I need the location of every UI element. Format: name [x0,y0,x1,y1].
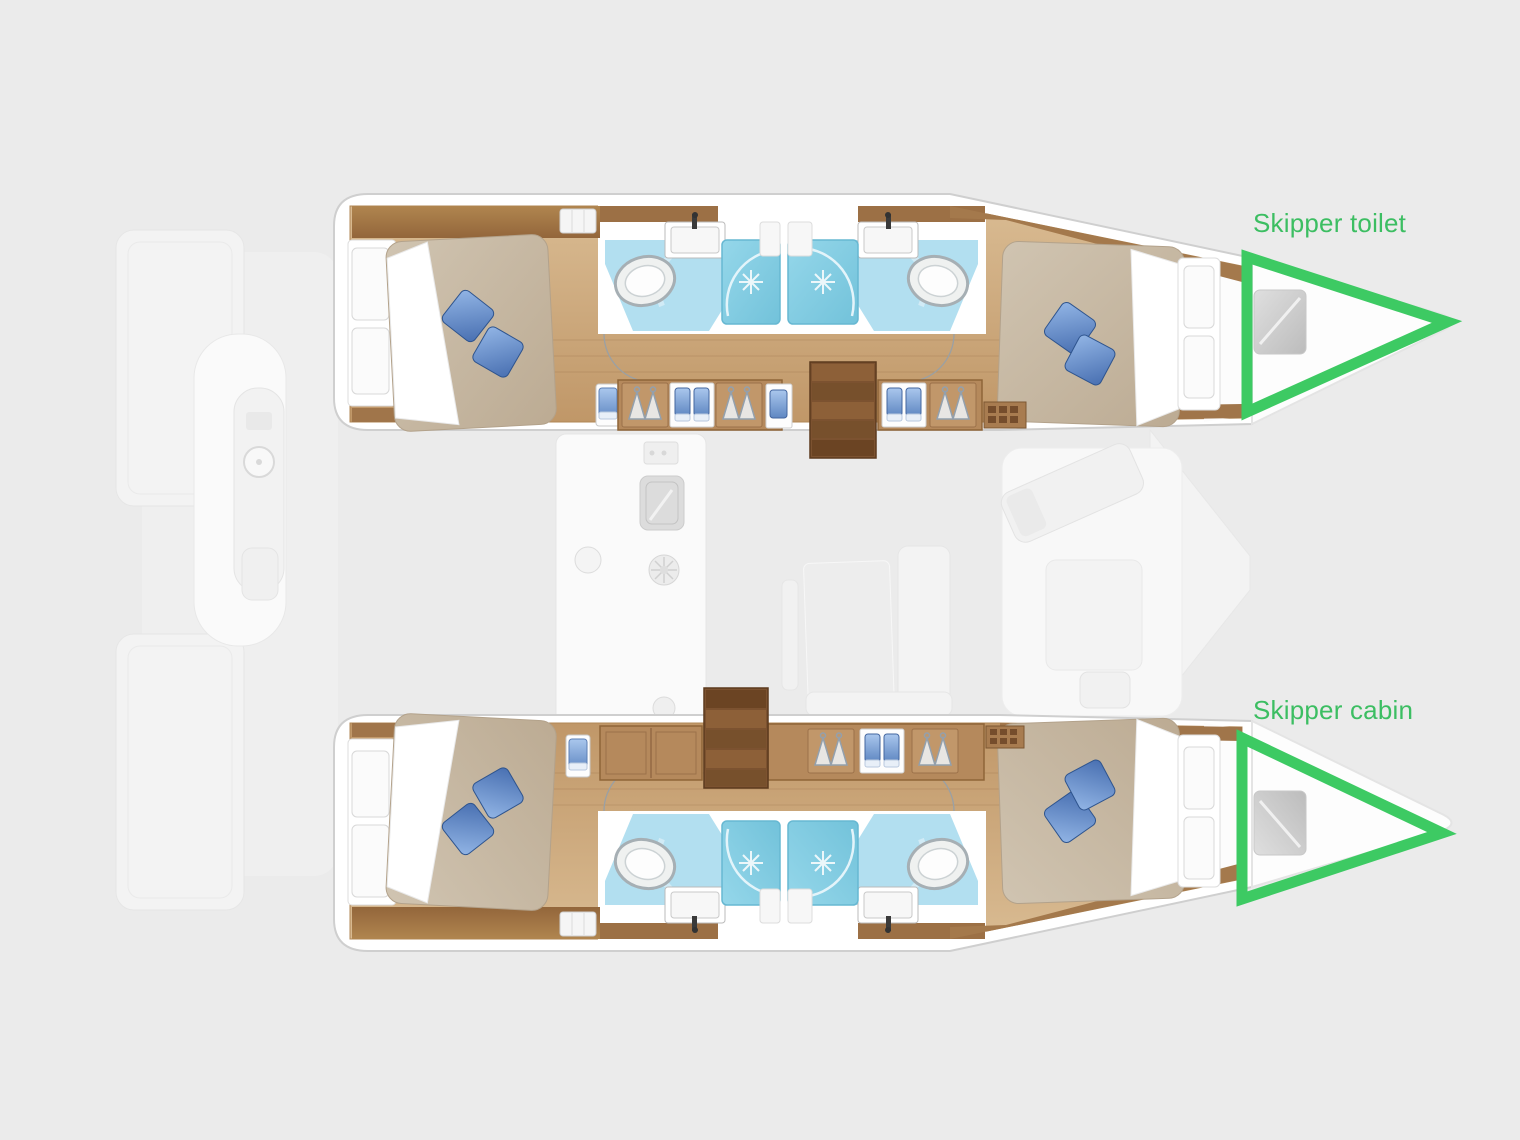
settee [898,546,950,712]
catamaran-layout-diagram: Skipper toilet Skipper cabin [0,0,1520,1140]
floor-plan-canvas [0,0,1520,1140]
helm-station [194,334,286,646]
skipper-toilet-label: Skipper toilet [1253,208,1406,239]
plain-cabinet [600,726,702,780]
saloon-table [803,561,894,714]
drawer-chest [984,402,1026,428]
saloon [556,430,1250,734]
bottom-hull-wardrobes [566,724,1024,780]
forward-cockpit [997,440,1182,716]
skipper-cabin-label: Skipper cabin [1253,695,1413,726]
helm-seat [242,548,278,600]
swim-platform-bottom [116,634,244,910]
drawer-chest [986,726,1024,748]
bottom-hull-stairs [704,688,768,788]
settee [806,692,952,716]
galley [556,434,706,734]
dinette [782,546,952,716]
stern-deck [116,230,338,910]
top-hull-stairs [810,362,876,458]
